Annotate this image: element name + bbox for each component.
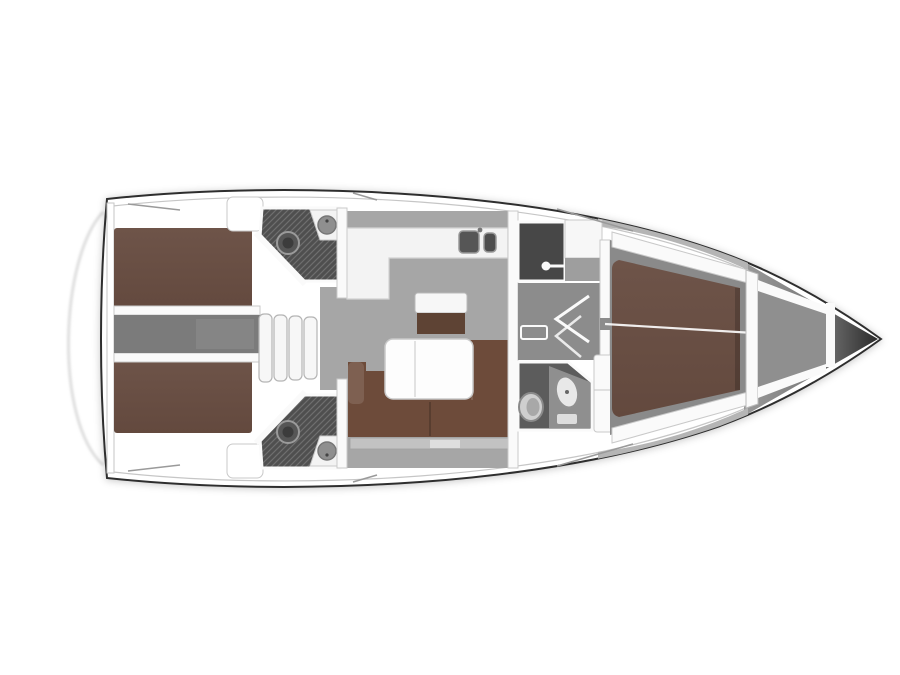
salon (320, 208, 513, 468)
sink-icon (318, 442, 336, 460)
mast-bench-base (417, 313, 465, 334)
boat-floorplan (0, 0, 900, 675)
deck-locker-port (227, 197, 263, 231)
deck-locker-starboard (227, 444, 263, 478)
salon-table (385, 339, 473, 399)
head-shelf (557, 414, 577, 424)
berth-foot-edge (735, 288, 740, 390)
bow-bulkhead (826, 303, 835, 367)
floorplan-canvas (0, 0, 900, 675)
toilet-bowl (283, 427, 294, 438)
step-tread (289, 316, 302, 380)
step-tread (259, 314, 272, 382)
faucet-icon (325, 453, 328, 456)
step-tread (304, 317, 317, 379)
transom-platform (68, 212, 103, 465)
faucet-icon (325, 219, 328, 222)
mast-bench-top (415, 293, 467, 313)
aft-cabin-starboard-berth (114, 357, 252, 433)
galley-sink-right (484, 233, 496, 252)
wardrobe-front (565, 258, 602, 281)
salon-aft-bulkhead-port (337, 208, 347, 298)
sofa-armrest (348, 362, 364, 404)
walkway-wall-port (114, 306, 260, 315)
shower-head-icon (542, 262, 551, 271)
stern-bulkhead (107, 203, 114, 473)
walkway-wall-starboard (114, 353, 260, 362)
faucet-icon (478, 228, 483, 233)
aft-cabin-port-berth (114, 228, 252, 312)
salon-aft-bulkhead-starboard (337, 379, 347, 468)
step-tread (274, 315, 287, 381)
toilet-bowl (283, 238, 294, 249)
toilet-bowl (527, 398, 540, 416)
drain-icon (565, 390, 569, 394)
wardrobe-top (565, 220, 602, 258)
chain-locker-bulkhead (746, 270, 758, 408)
engine-hatch (196, 319, 254, 349)
plinth-hatch (430, 440, 460, 448)
galley-sink-left (459, 231, 479, 253)
sink-icon (318, 216, 336, 234)
shower-room-floor (518, 222, 565, 281)
